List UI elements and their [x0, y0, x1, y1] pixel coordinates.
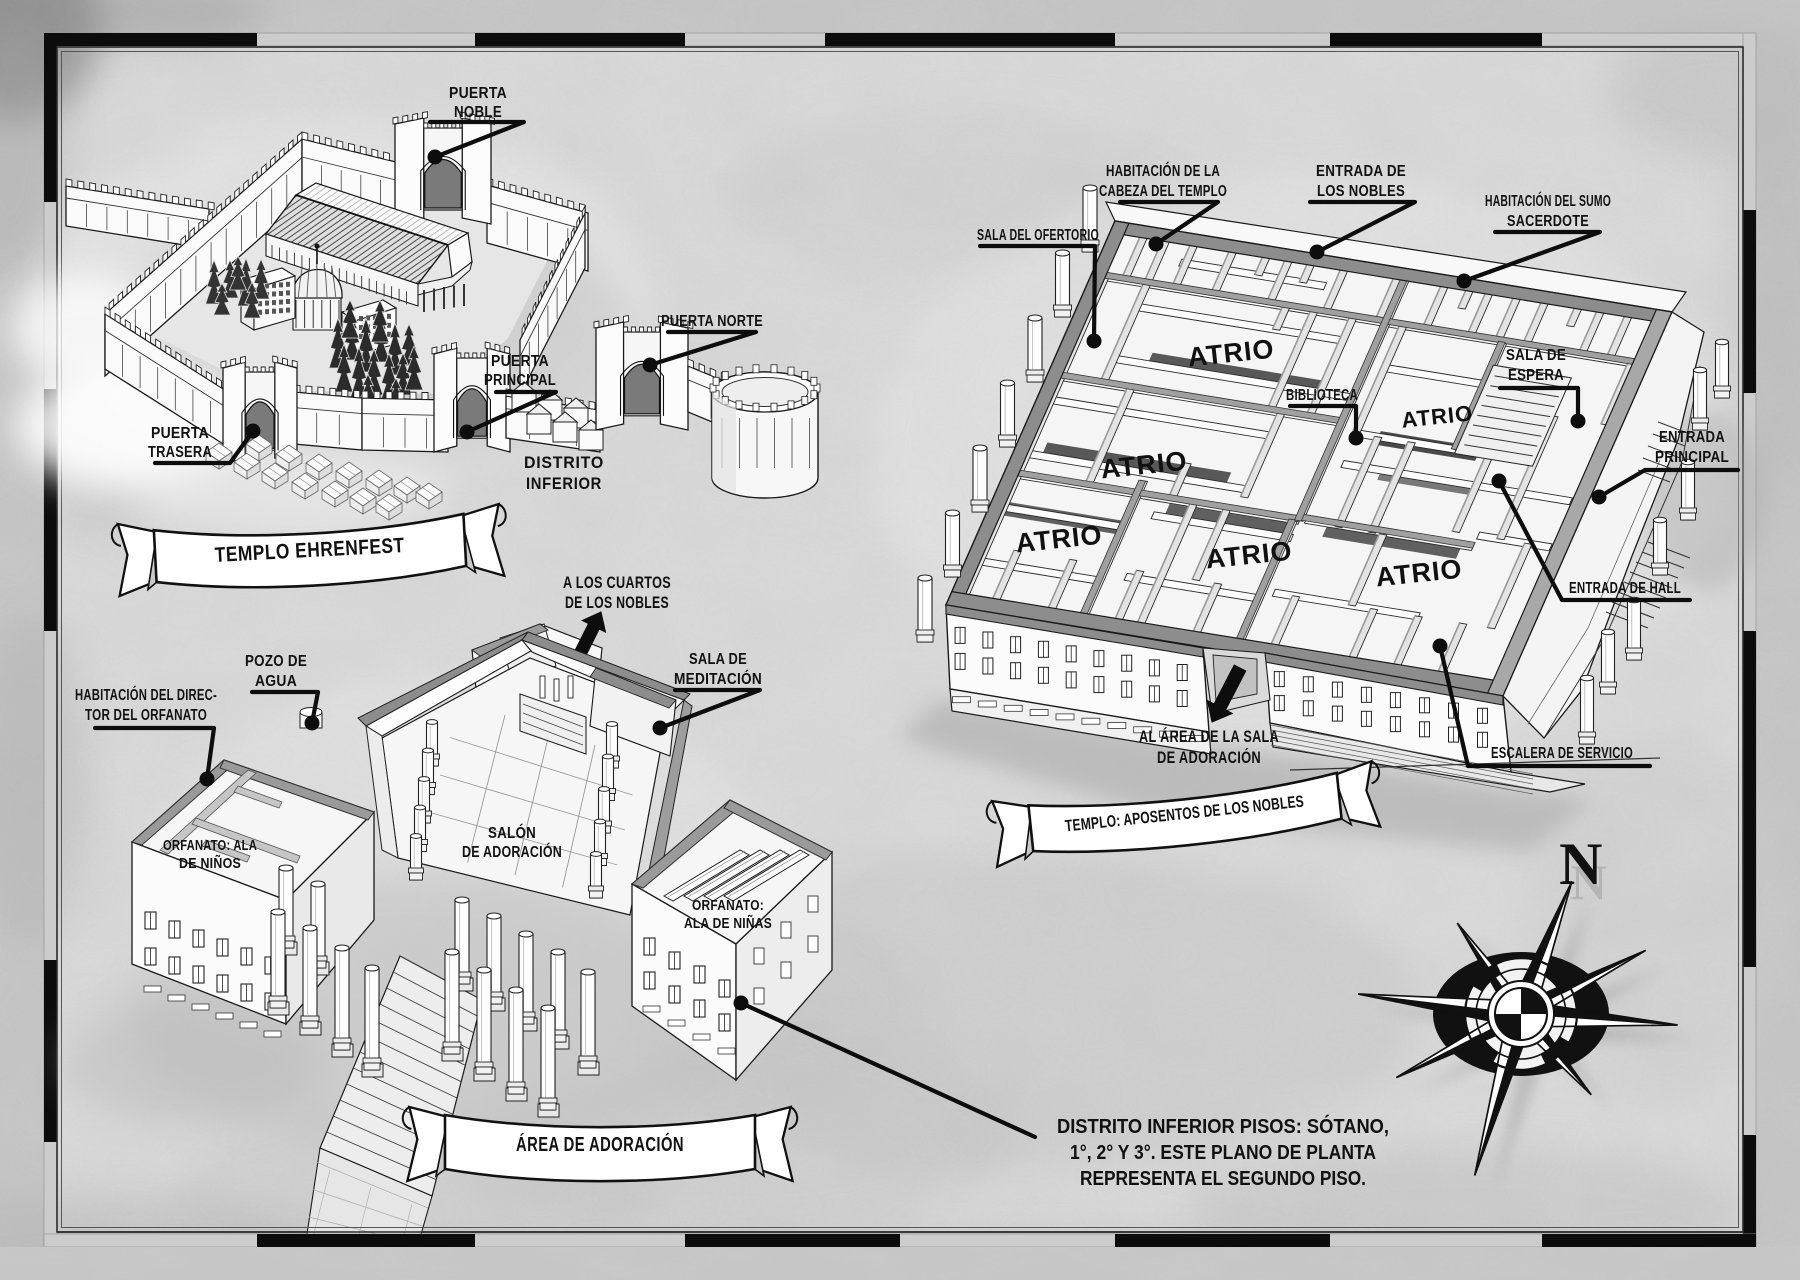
svg-text:ENTRADA DE: ENTRADA DE — [1316, 163, 1406, 180]
svg-text:DE LOS NOBLES: DE LOS NOBLES — [565, 593, 669, 612]
svg-text:PUERTA NORTE: PUERTA NORTE — [661, 313, 763, 330]
svg-text:DISTRITO INFERIOR PISOS: SÓTAN: DISTRITO INFERIOR PISOS: SÓTANO, — [1057, 1114, 1389, 1138]
svg-text:PRINCIPAL: PRINCIPAL — [1655, 449, 1729, 466]
svg-text:DE NIÑOS: DE NIÑOS — [179, 854, 241, 872]
svg-text:TRASERA: TRASERA — [148, 444, 212, 461]
svg-text:ÁREA DE ADORACIÓN: ÁREA DE ADORACIÓN — [516, 1132, 684, 1156]
svg-text:PRINCIPAL: PRINCIPAL — [484, 372, 556, 389]
svg-text:BIBLIOTECA: BIBLIOTECA — [1286, 387, 1358, 404]
svg-text:TOR DEL ORFANATO: TOR DEL ORFANATO — [85, 707, 207, 724]
svg-text:MEDITACIÓN: MEDITACIÓN — [674, 670, 762, 688]
svg-text:PUERTA: PUERTA — [151, 425, 209, 442]
svg-text:SALA DE: SALA DE — [1506, 347, 1566, 364]
svg-text:ENTRADA: ENTRADA — [1659, 429, 1725, 446]
svg-text:POZO DE: POZO DE — [245, 653, 307, 670]
svg-text:DE ADORACIÓN: DE ADORACIÓN — [462, 843, 562, 861]
svg-text:SALA DE: SALA DE — [689, 651, 747, 668]
svg-text:DISTRITO: DISTRITO — [524, 453, 604, 472]
svg-text:N: N — [1559, 831, 1603, 897]
svg-text:PUERTA: PUERTA — [449, 85, 507, 102]
svg-text:NOBLE: NOBLE — [454, 104, 502, 121]
svg-text:SALA DEL OFERTORIO: SALA DEL OFERTORIO — [977, 227, 1099, 244]
svg-text:AL ÁREA DE LA SALA: AL ÁREA DE LA SALA — [1139, 727, 1279, 746]
svg-text:ORFANATO:: ORFANATO: — [692, 898, 764, 914]
svg-text:ESPERA: ESPERA — [1508, 367, 1564, 384]
svg-text:LOS NOBLES: LOS NOBLES — [1317, 183, 1405, 200]
svg-text:DE ADORACIÓN: DE ADORACIÓN — [1157, 748, 1261, 767]
svg-text:1°, 2° Y 3°. ESTE PLANO DE PLA: 1°, 2° Y 3°. ESTE PLANO DE PLANTA — [1070, 1142, 1376, 1164]
svg-text:AGUA: AGUA — [255, 673, 297, 690]
svg-text:HABITACIÓN DEL SUMO: HABITACIÓN DEL SUMO — [1485, 192, 1611, 210]
svg-text:CABEZA DEL TEMPLO: CABEZA DEL TEMPLO — [1099, 183, 1227, 200]
svg-text:HABITACIÓN DEL DIREC-: HABITACIÓN DEL DIREC- — [75, 686, 217, 704]
svg-text:PUERTA: PUERTA — [491, 353, 549, 370]
svg-text:ESCALERA DE SERVICIO: ESCALERA DE SERVICIO — [1491, 745, 1633, 762]
svg-text:ALA DE NIÑAS: ALA DE NIÑAS — [684, 914, 772, 932]
svg-text:REPRESENTA EL SEGUNDO PISO.: REPRESENTA EL SEGUNDO PISO. — [1080, 1168, 1366, 1190]
svg-text:A LOS CUARTOS: A LOS CUARTOS — [563, 573, 671, 592]
svg-text:SACERDOTE: SACERDOTE — [1507, 213, 1589, 230]
svg-text:SALÓN: SALÓN — [488, 824, 536, 842]
svg-text:ORFANATO: ALA: ORFANATO: ALA — [163, 838, 257, 854]
svg-text:HABITACIÓN DE LA: HABITACIÓN DE LA — [1106, 162, 1220, 180]
svg-text:INFERIOR: INFERIOR — [526, 474, 602, 493]
svg-text:ENTRADA DE HALL: ENTRADA DE HALL — [1569, 580, 1681, 597]
